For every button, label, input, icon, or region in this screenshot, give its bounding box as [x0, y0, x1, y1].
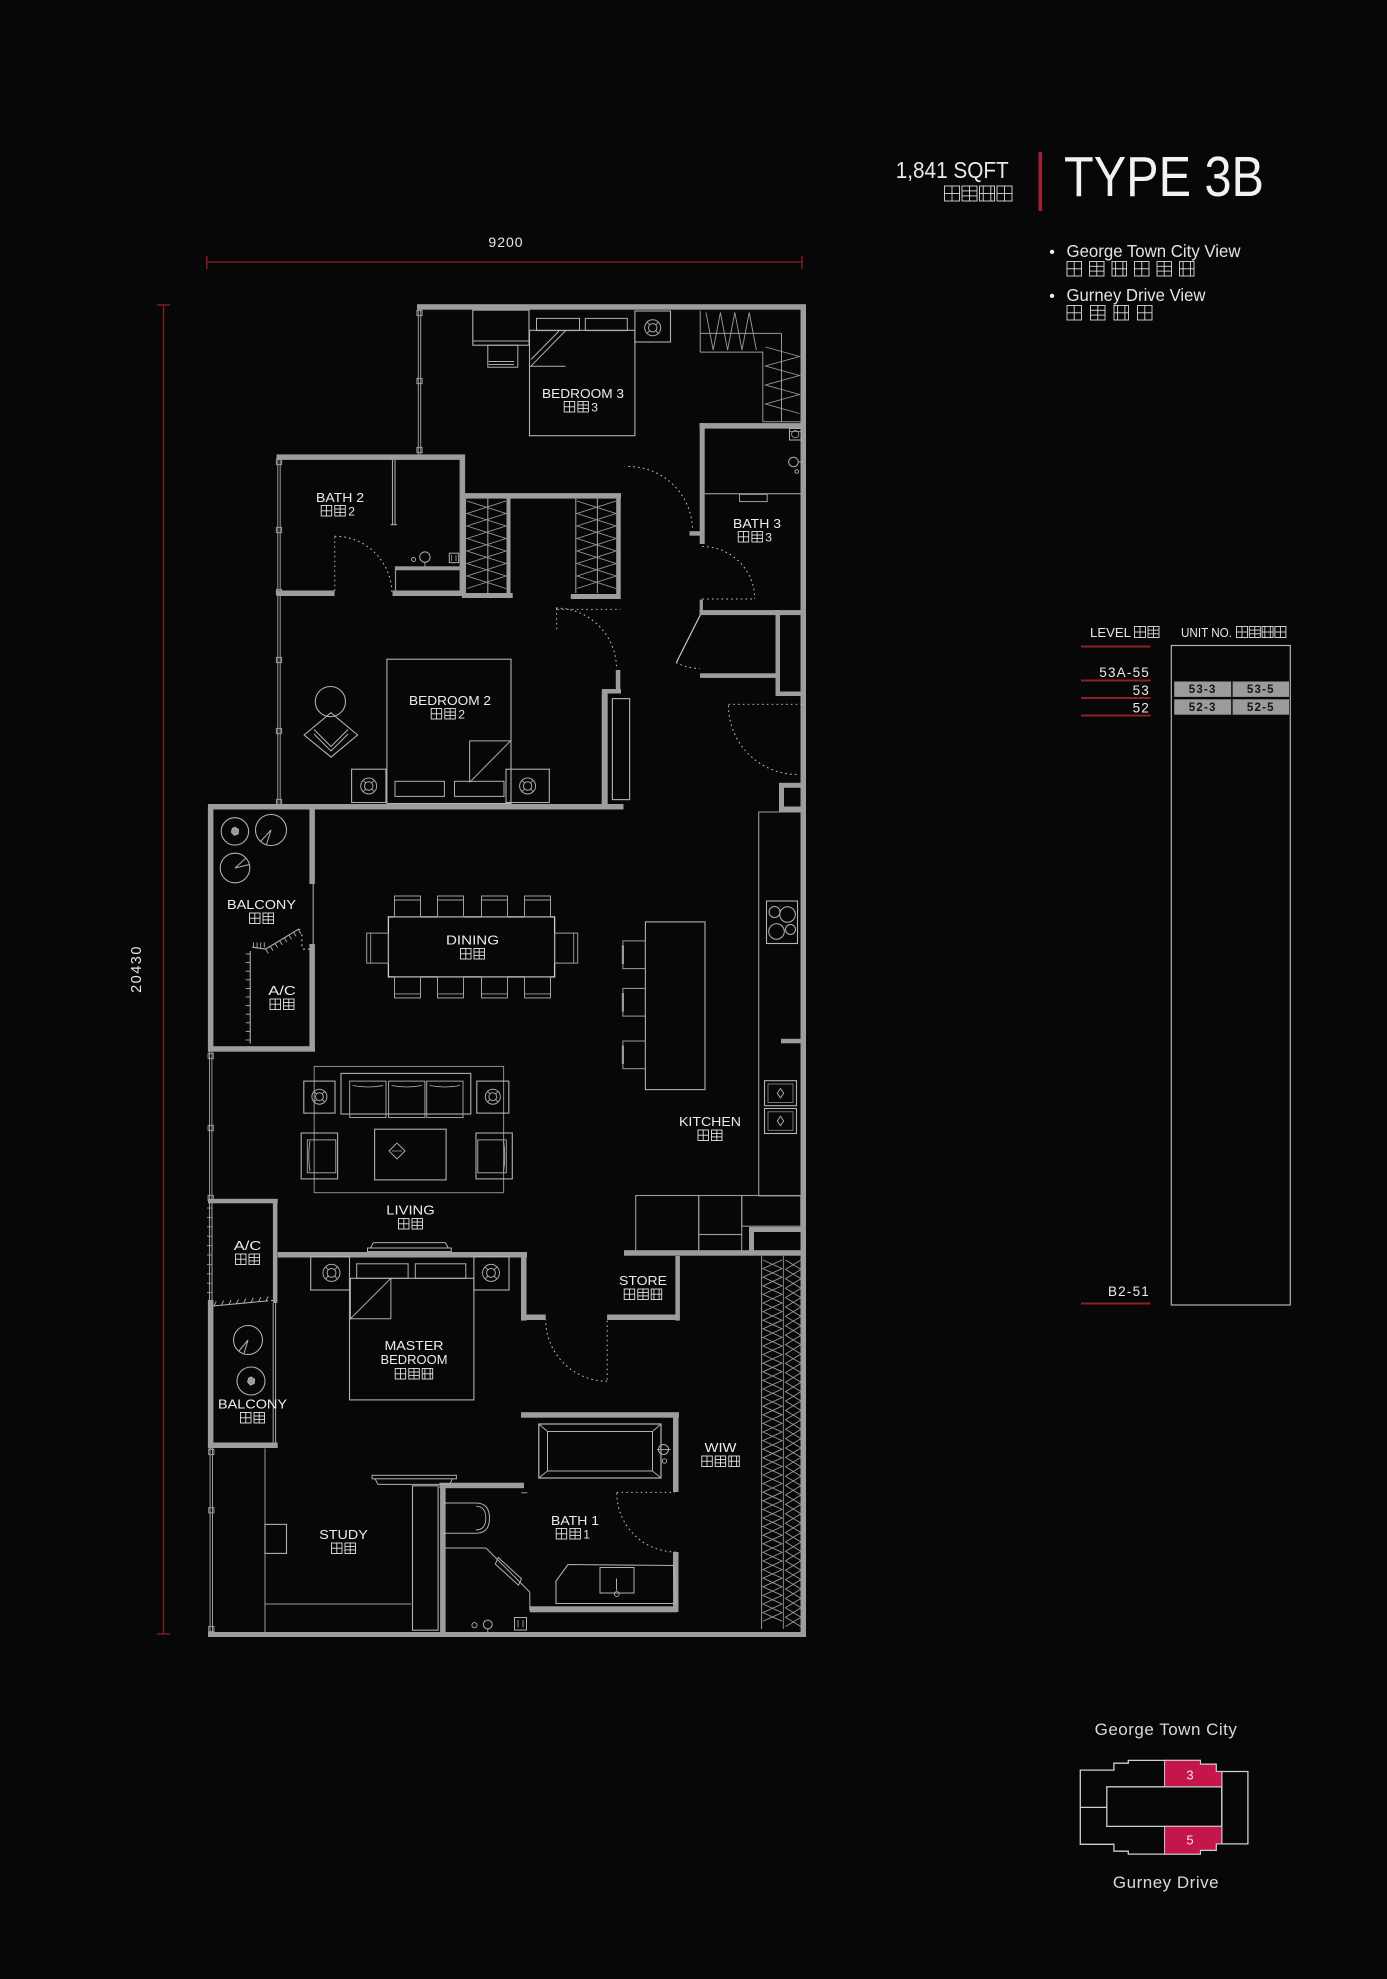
svg-text:BEDROOM: BEDROOM — [381, 1353, 448, 1367]
svg-text:LEVEL: LEVEL — [1090, 626, 1131, 640]
svg-text:DINING: DINING — [446, 934, 499, 948]
svg-text:2: 2 — [348, 505, 355, 519]
svg-text:BEDROOM 3: BEDROOM 3 — [542, 387, 624, 401]
svg-text:George Town City: George Town City — [1095, 1720, 1238, 1739]
svg-text:BATH 2: BATH 2 — [316, 491, 364, 505]
svg-text:Gurney Drive: Gurney Drive — [1113, 1873, 1219, 1892]
svg-text:5: 5 — [1186, 1833, 1193, 1848]
svg-text:53-3: 53-3 — [1189, 684, 1217, 696]
svg-text:3: 3 — [765, 531, 772, 545]
svg-text:BALCONY: BALCONY — [218, 1398, 288, 1412]
svg-text:BALCONY: BALCONY — [227, 898, 297, 912]
svg-text:3: 3 — [591, 401, 598, 415]
svg-text:53-5: 53-5 — [1247, 684, 1275, 696]
svg-text:BATH 3: BATH 3 — [733, 517, 781, 531]
svg-text:BEDROOM 2: BEDROOM 2 — [409, 694, 491, 708]
svg-text:1,841 SQFT: 1,841 SQFT — [896, 157, 1009, 183]
svg-text:2: 2 — [458, 708, 465, 722]
svg-text:1: 1 — [583, 1528, 590, 1542]
svg-text:LIVING: LIVING — [386, 1204, 435, 1218]
svg-text:A/C: A/C — [268, 984, 296, 998]
svg-text:TYPE 3B: TYPE 3B — [1064, 145, 1264, 209]
svg-text:UNIT NO.: UNIT NO. — [1181, 626, 1232, 640]
svg-text:53: 53 — [1133, 683, 1150, 698]
svg-text:BATH 1: BATH 1 — [551, 1514, 599, 1528]
svg-text:Gurney Drive View: Gurney Drive View — [1067, 285, 1206, 305]
svg-text:•: • — [1049, 244, 1055, 261]
svg-text:20430: 20430 — [129, 945, 145, 993]
svg-text:STORE: STORE — [619, 1274, 667, 1288]
svg-text:WIW: WIW — [705, 1441, 737, 1455]
svg-text:KITCHEN: KITCHEN — [679, 1115, 741, 1129]
svg-text:STUDY: STUDY — [319, 1528, 368, 1542]
svg-text:George Town City View: George Town City View — [1067, 241, 1241, 261]
svg-text:B2-51: B2-51 — [1108, 1284, 1150, 1299]
svg-text:52-3: 52-3 — [1189, 702, 1217, 714]
svg-text:A/C: A/C — [234, 1239, 262, 1253]
svg-text:53A-55: 53A-55 — [1099, 665, 1150, 680]
svg-text:3: 3 — [1186, 1768, 1193, 1783]
svg-text:52: 52 — [1133, 701, 1150, 716]
svg-text:MASTER: MASTER — [385, 1339, 444, 1353]
svg-text:52-5: 52-5 — [1247, 702, 1275, 714]
svg-text:9200: 9200 — [488, 234, 523, 250]
svg-text:•: • — [1049, 288, 1055, 305]
